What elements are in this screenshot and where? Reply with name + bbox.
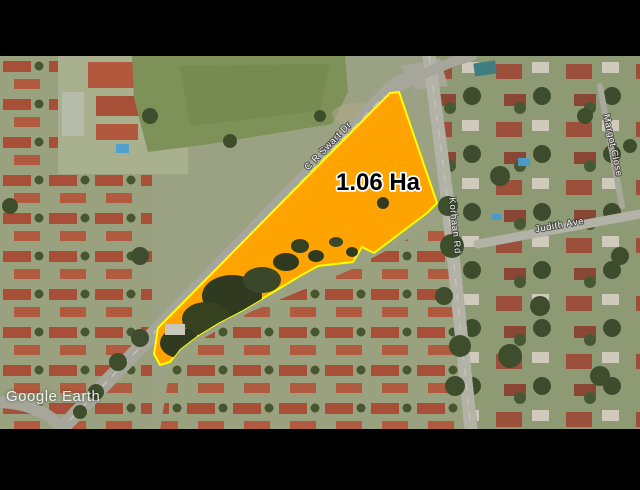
satellite-imagery: 1.06 Ha C R Swart Dr Korhaan Rd Judith A… bbox=[0, 56, 640, 429]
screenshot: 1.06 Ha C R Swart Dr Korhaan Rd Judith A… bbox=[0, 0, 640, 490]
letterbox-top bbox=[0, 0, 640, 56]
parcel-area-label: 1.06 Ha bbox=[336, 169, 421, 196]
letterbox-bottom bbox=[0, 429, 640, 490]
swimming-pool bbox=[116, 144, 129, 153]
satellite-map[interactable]: 1.06 Ha C R Swart Dr Korhaan Rd Judith A… bbox=[0, 56, 640, 429]
google-earth-watermark: Google Earth bbox=[6, 388, 100, 405]
building-inside-parcel bbox=[165, 324, 185, 335]
